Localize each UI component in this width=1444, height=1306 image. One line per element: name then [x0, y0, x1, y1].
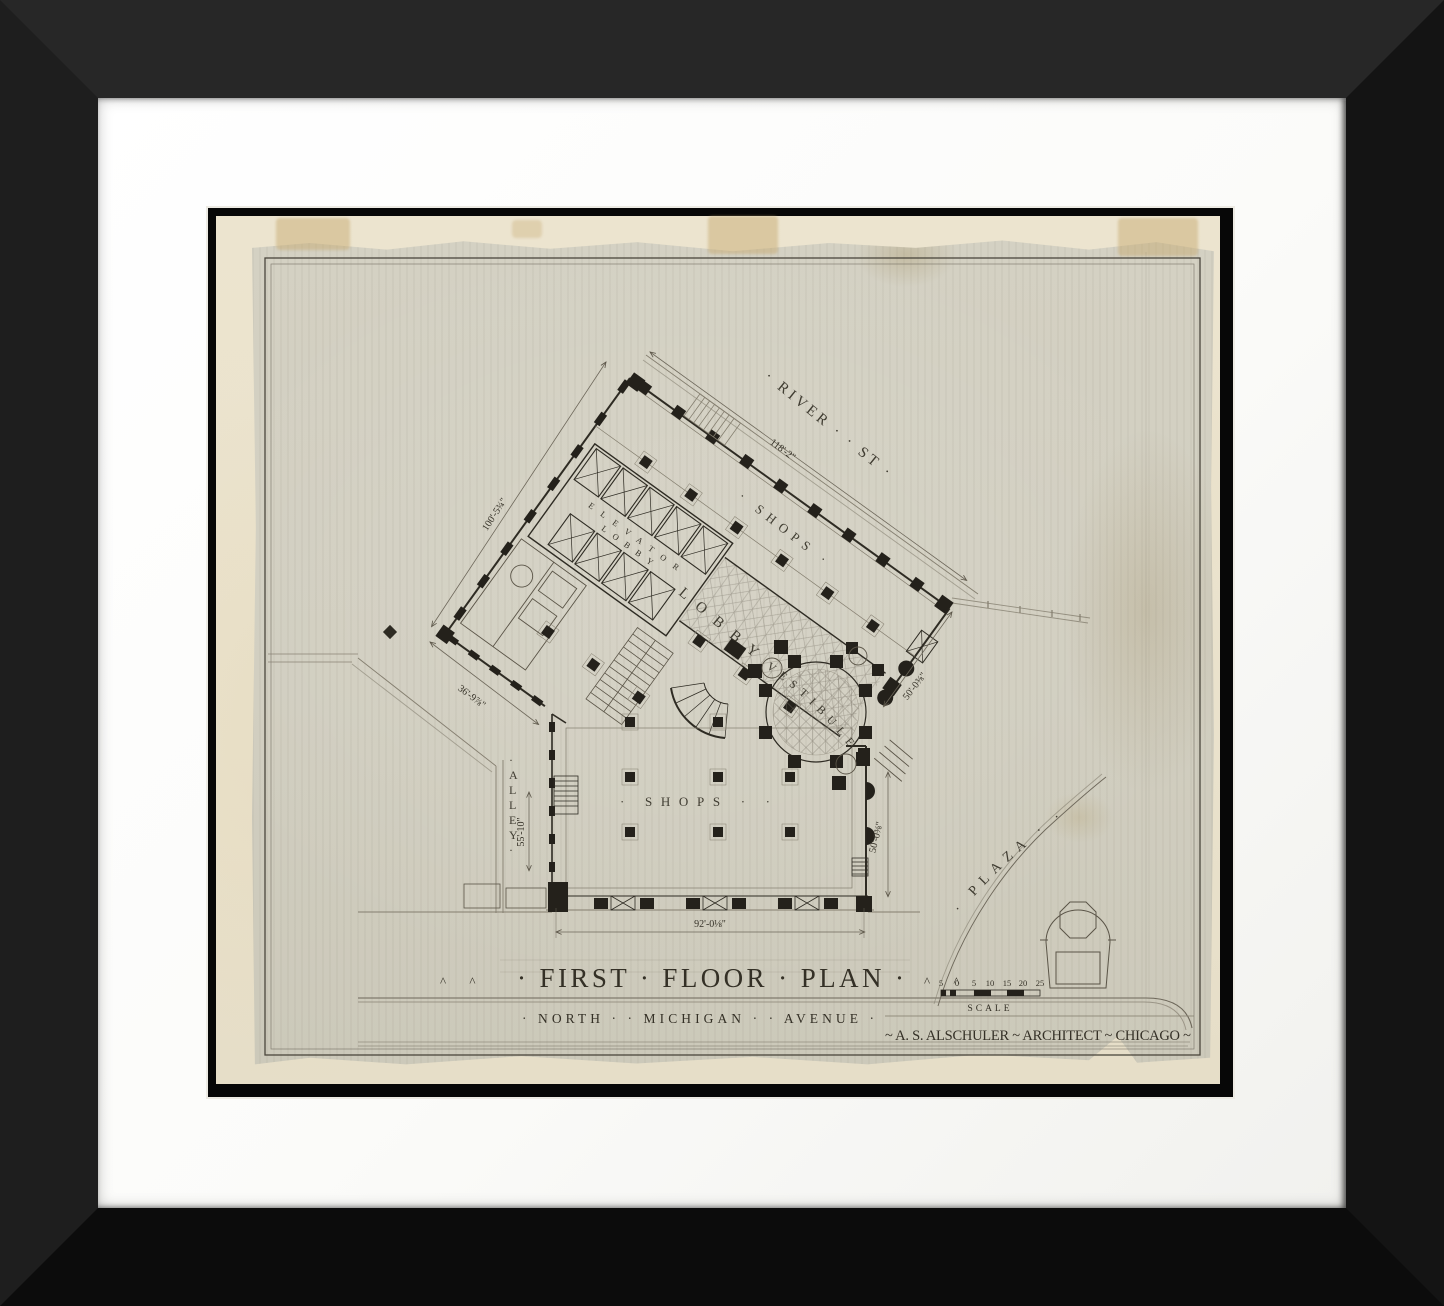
drawing-sheet	[252, 238, 1214, 1066]
mat-board	[96, 96, 1348, 1210]
tape-stain	[512, 220, 542, 238]
framed-floor-plan: ELEVATOR LOBBY	[0, 0, 1444, 1306]
mount-paper	[216, 216, 1220, 1084]
tape-stain	[1118, 218, 1198, 256]
mat-opening	[208, 208, 1233, 1097]
tape-stain	[708, 216, 778, 254]
tape-stain	[276, 218, 350, 250]
